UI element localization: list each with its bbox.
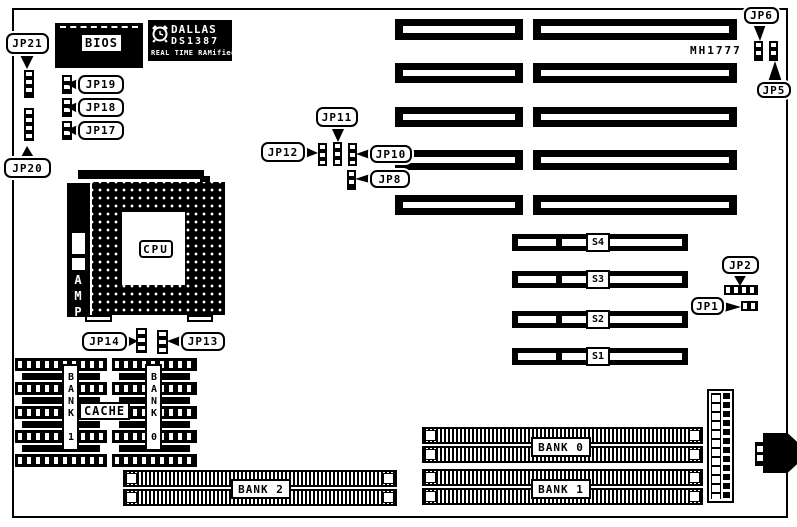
isa-slot [395,150,523,170]
jp5-jumper [769,41,778,61]
jp2-jumper [724,285,758,295]
jp6-label: JP6 [744,7,779,24]
jp13-jumper [157,330,168,354]
dallas-rtc-chip: DALLAS DS1387 REAL TIME RAMified [148,20,232,61]
cpu-socket-foot [85,315,112,322]
jp12-label: JP12 [261,142,305,162]
isa-slot [533,63,737,83]
amp-brand-label: AMP [71,273,85,321]
bank2-simm-label: BANK 2 [231,479,291,499]
motherboard-diagram: BIOS DALLAS DS1387 REAL TIME RAMified JP… [0,0,797,527]
amp-lever-slot [72,233,85,254]
bios-chip-notch [60,26,138,28]
keyboard-connector-pin [757,446,763,452]
pin-header-column [711,393,721,499]
jp13-label: JP13 [181,332,225,351]
jp8-label: JP8 [370,170,410,188]
cache-label: CACHE [79,402,130,420]
bank1-sram-label: BANK 1 [62,364,79,451]
jp21-label: JP21 [6,33,49,54]
jp11-label: JP11 [316,107,358,127]
isa-slot [533,195,737,215]
jp5-label: JP5 [757,82,791,98]
jp20-jumper [24,108,34,141]
rtc-line3: REAL TIME RAMified [151,50,229,57]
s1-label: S1 [586,347,610,366]
bank0-sram-label: BANK 0 [145,364,162,451]
jp12-jumper [318,143,327,166]
isa-slot [533,150,737,170]
keyboard-connector [763,433,797,473]
amp-lever-slot [72,258,85,270]
isa-slot [395,107,523,127]
jp19-label: JP19 [78,75,124,94]
isa-slot [395,195,523,215]
s3-label: S3 [586,270,610,289]
jp17-label: JP17 [78,121,124,140]
isa-slot [395,63,523,83]
jp21-jumper [24,70,34,98]
isa-slot [533,107,737,127]
jp14-label: JP14 [82,332,127,351]
pin-header [707,389,734,503]
keyboard-connector-pin [757,455,763,461]
bank1-simm-label: BANK 1 [531,479,591,499]
jp10-label: JP10 [370,145,412,163]
jp2-label: JP2 [722,256,759,274]
jp18-label: JP18 [78,98,124,117]
jp10-jumper [348,143,357,166]
s4-label: S4 [586,233,610,252]
cpu-socket-foot [187,315,213,322]
bank0-simm-label: BANK 0 [531,437,591,457]
cpu-socket-top-bar [78,170,204,179]
clock-icon [151,23,171,47]
part-number: MH1777 [690,44,742,57]
jp17-jumper [62,121,72,140]
isa-slot [395,19,523,40]
jp8-jumper [347,170,356,190]
rtc-brand: DALLAS [171,24,229,35]
s2-label: S2 [586,310,610,329]
jp1-label: JP1 [691,297,724,315]
jp19-jumper [62,75,72,94]
cpu-label: CPU [139,240,173,258]
pin-header-column [723,393,730,499]
isa-slot [533,19,737,40]
jp18-jumper [62,98,72,117]
jp14-jumper [136,328,147,353]
rtc-model: DS1387 [171,37,229,47]
bios-label: BIOS [80,33,123,53]
jp20-label: JP20 [4,158,51,178]
jp1-jumper [741,301,758,311]
jp11-jumper [333,142,342,166]
jp6-jumper [754,41,763,61]
